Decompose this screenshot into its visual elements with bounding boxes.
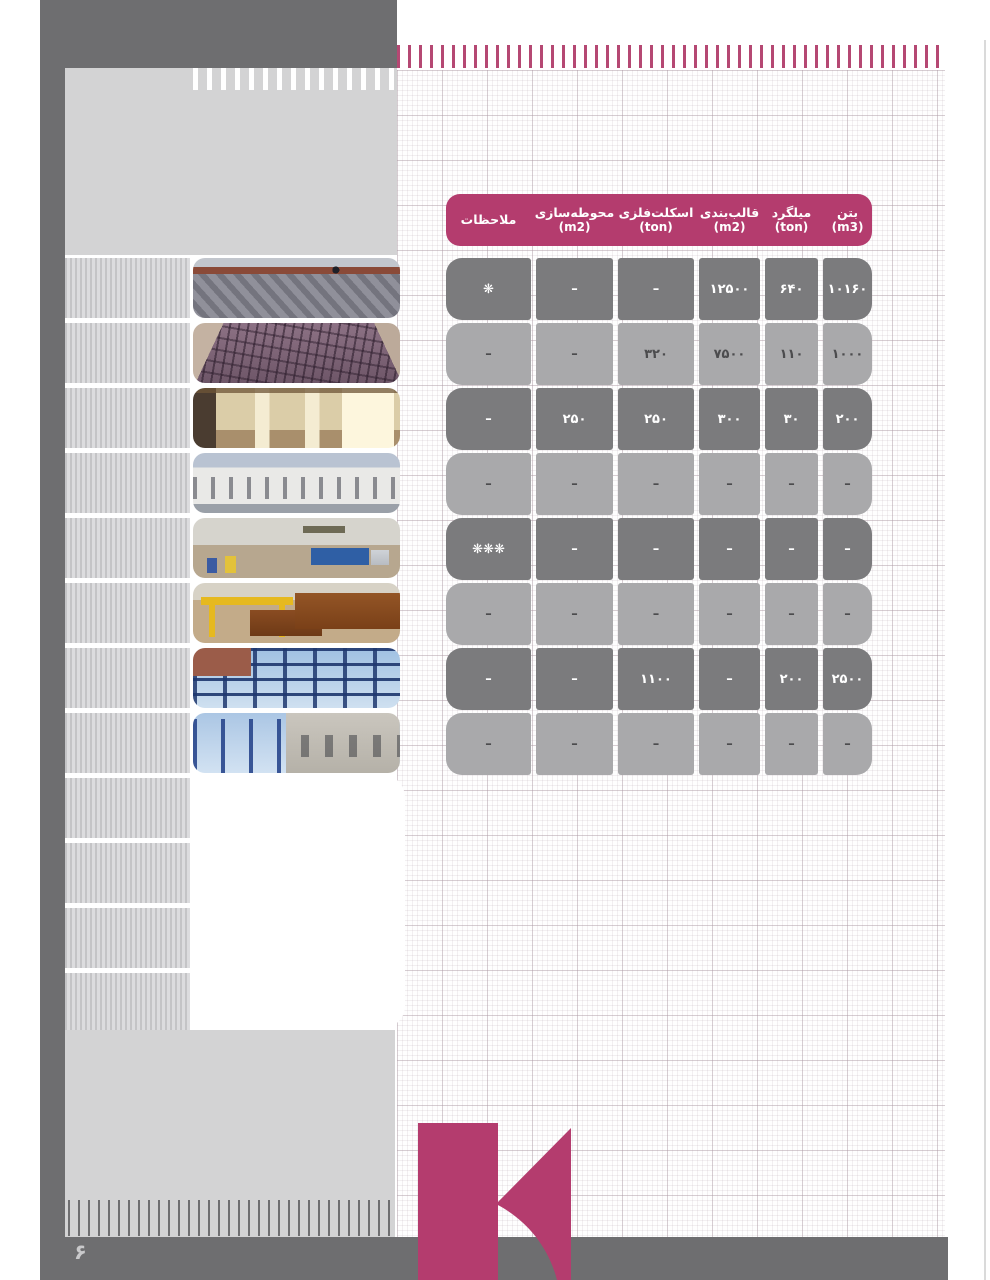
table-cell: – [536,583,613,645]
photo-construction-building [193,713,400,773]
project-photo-column [193,258,400,778]
header-unit: (m2) [714,220,746,235]
table-cell: – [765,583,818,645]
table-cell: – [446,583,531,645]
header-unit: (ton) [639,220,673,235]
table-cell: ۲۰۰ [765,648,818,710]
table-cell: – [536,258,613,320]
brochure-page: ملاحظات محوطه‌سازی (m2) اسکلت‌فلزی (ton)… [0,0,990,1280]
table-rows: ❋––۱۲۵۰۰۶۴۰۱۰۱۶۰––۳۲۰۷۵۰۰۱۱۰۱۰۰۰–۲۵۰۲۵۰۳… [446,258,872,775]
table-cell: – [699,453,760,515]
striped-texture-bands [65,258,190,1031]
table-cell: – [823,583,872,645]
top-dark-block [40,0,397,68]
table-cell: ۳۰۰ [699,388,760,450]
table-cell: – [536,323,613,385]
page-edge-line [984,40,986,1280]
table-cell: – [536,648,613,710]
table-cell: – [618,518,694,580]
table-cell: ۲۵۰۰ [823,648,872,710]
table-row: –––––– [446,713,872,775]
table-row: ––۳۲۰۷۵۰۰۱۱۰۱۰۰۰ [446,323,872,385]
header-title: اسکلت‌فلزی [619,205,694,221]
table-cell: – [699,713,760,775]
table-cell: ۱۰۱۶۰ [823,258,872,320]
table-cell: – [699,648,760,710]
table-cell: – [446,388,531,450]
table-cell: – [618,258,694,320]
table-cell: – [823,453,872,515]
table-row: –––––– [446,583,872,645]
table-cell: ❋❋❋ [446,518,531,580]
photo-steel-frame [193,648,400,708]
photo-interior-hall [193,388,400,448]
page-number: ۶ [74,1240,87,1264]
table-cell: ۱۰۰۰ [823,323,872,385]
company-logo-k [418,1123,575,1280]
table-cell: – [536,453,613,515]
table-cell: ۲۵۰ [618,388,694,450]
header-landscaping: محوطه‌سازی (m2) [536,205,613,236]
top-gray-block [65,68,397,255]
header-title: ملاحظات [461,212,517,228]
table-cell: ۳۰ [765,388,818,450]
header-title: بتن [837,205,858,221]
header-rebar: میلگرد (ton) [765,205,818,236]
table-cell: – [446,713,531,775]
table-cell: ۱۲۵۰۰ [699,258,760,320]
table-cell: ۱۱۰۰ [618,648,694,710]
header-remarks: ملاحظات [446,212,531,228]
table-cell: ۱۱۰ [765,323,818,385]
header-title: محوطه‌سازی [535,205,615,221]
table-cell: – [823,713,872,775]
table-row: ❋❋❋––––– [446,518,872,580]
table-row: –––––– [446,453,872,515]
white-tick-fringe [193,68,397,90]
header-concrete: بتن (m3) [823,205,872,236]
table-cell: ۳۲۰ [618,323,694,385]
table-cell: – [446,648,531,710]
table-row: –۲۵۰۲۵۰۳۰۰۳۰۲۰۰ [446,388,872,450]
left-dark-strip [40,0,65,1280]
header-unit: (ton) [775,220,809,235]
table-cell: ۶۴۰ [765,258,818,320]
empty-white-panel [193,775,405,1028]
table-cell: ۲۵۰ [536,388,613,450]
photo-excavator-truck [193,518,400,578]
photo-rebar-foundation [193,323,400,383]
header-steel-structure: اسکلت‌فلزی (ton) [618,205,694,236]
table-row: ––۱۱۰۰–۲۰۰۲۵۰۰ [446,648,872,710]
table-cell: – [618,583,694,645]
table-cell: – [536,518,613,580]
header-unit: (m3) [832,220,864,235]
header-unit: (m2) [559,220,591,235]
table-cell: – [823,518,872,580]
table-row: ❋––۱۲۵۰۰۶۴۰۱۰۱۶۰ [446,258,872,320]
table-header-row: ملاحظات محوطه‌سازی (m2) اسکلت‌فلزی (ton)… [446,194,872,246]
quantities-table: ملاحظات محوطه‌سازی (m2) اسکلت‌فلزی (ton)… [446,194,872,778]
table-cell: – [446,453,531,515]
table-cell: ۷۵۰۰ [699,323,760,385]
bottom-gray-block [65,1030,395,1237]
dark-tick-fringe [68,1200,392,1236]
table-cell: ❋ [446,258,531,320]
table-cell: – [699,518,760,580]
header-formwork: قالب‌بندی (m2) [699,205,760,236]
photo-gantry-crane [193,583,400,643]
table-cell: – [765,713,818,775]
table-cell: – [765,453,818,515]
table-cell: – [618,713,694,775]
pink-tick-border [397,45,945,68]
table-cell: – [446,323,531,385]
header-title: قالب‌بندی [700,205,759,221]
photo-apartment-buildings [193,453,400,513]
table-cell: ۲۰۰ [823,388,872,450]
table-cell: – [699,583,760,645]
header-title: میلگرد [772,205,811,221]
table-cell: – [536,713,613,775]
table-cell: – [618,453,694,515]
photo-stone-wall [193,258,400,318]
table-cell: – [765,518,818,580]
